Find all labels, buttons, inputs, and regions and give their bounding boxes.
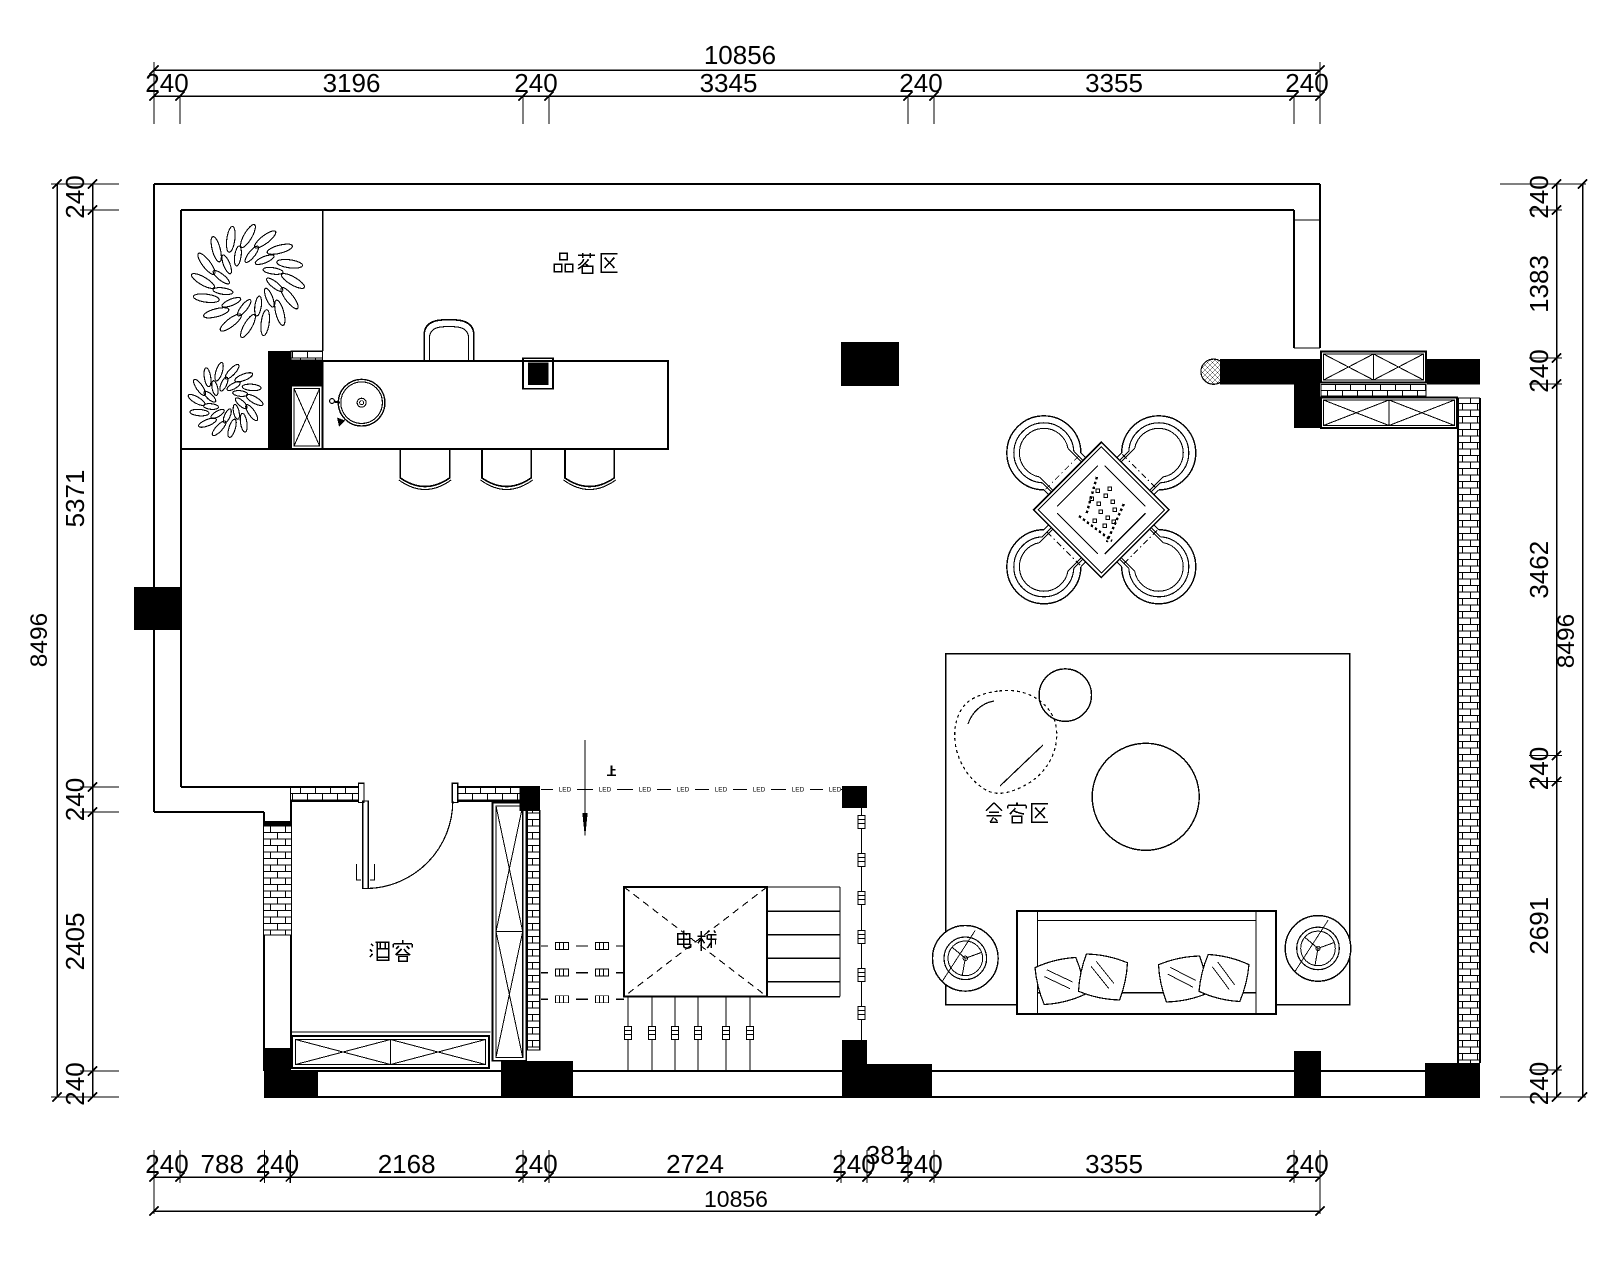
svg-text:3355: 3355 xyxy=(1085,1149,1143,1179)
svg-text:LED: LED xyxy=(792,787,805,794)
svg-text:5371: 5371 xyxy=(60,470,90,528)
svg-text:LED: LED xyxy=(829,787,842,794)
svg-text:LED: LED xyxy=(715,787,728,794)
svg-text:240: 240 xyxy=(145,1149,188,1179)
svg-text:8496: 8496 xyxy=(26,613,53,668)
svg-text:240: 240 xyxy=(899,68,942,98)
svg-text:3196: 3196 xyxy=(323,68,381,98)
svg-text:LED: LED xyxy=(677,787,690,794)
svg-text:240: 240 xyxy=(60,778,90,821)
svg-text:240: 240 xyxy=(899,1149,942,1179)
svg-text:240: 240 xyxy=(60,1062,90,1105)
svg-text:10856: 10856 xyxy=(704,40,776,70)
svg-text:3462: 3462 xyxy=(1524,541,1554,599)
svg-text:240: 240 xyxy=(1524,175,1554,218)
svg-text:LED: LED xyxy=(753,787,766,794)
svg-text:240: 240 xyxy=(1524,747,1554,790)
svg-text:2168: 2168 xyxy=(378,1149,436,1179)
svg-text:240: 240 xyxy=(514,1149,557,1179)
svg-text:2691: 2691 xyxy=(1524,897,1554,955)
svg-text:2405: 2405 xyxy=(60,913,90,971)
svg-text:10856: 10856 xyxy=(704,1186,768,1212)
svg-text:LED: LED xyxy=(559,787,572,794)
svg-text:240: 240 xyxy=(1524,349,1554,392)
svg-text:8496: 8496 xyxy=(1553,614,1580,669)
svg-text:2724: 2724 xyxy=(666,1149,724,1179)
svg-text:1383: 1383 xyxy=(1524,255,1554,313)
svg-text:240: 240 xyxy=(1285,1149,1328,1179)
svg-text:240: 240 xyxy=(256,1149,299,1179)
svg-text:240: 240 xyxy=(514,68,557,98)
svg-text:240: 240 xyxy=(145,68,188,98)
svg-text:LED: LED xyxy=(599,787,612,794)
svg-text:3355: 3355 xyxy=(1085,68,1143,98)
svg-text:240: 240 xyxy=(1524,1062,1554,1105)
svg-text:240: 240 xyxy=(60,175,90,218)
svg-text:788: 788 xyxy=(201,1149,244,1179)
svg-text:3345: 3345 xyxy=(700,68,758,98)
svg-text:LED: LED xyxy=(639,787,652,794)
svg-text:240: 240 xyxy=(1285,68,1328,98)
